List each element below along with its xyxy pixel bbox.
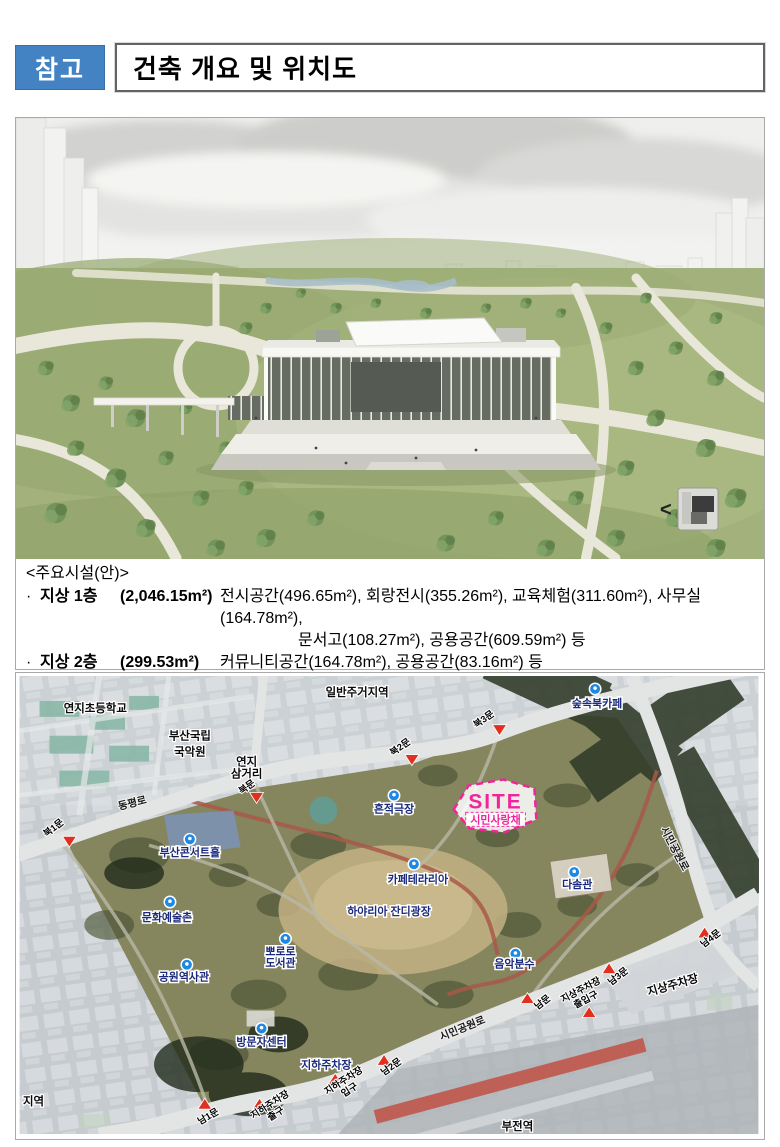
report-page: 참고 건축 개요 및 위치도: [0, 0, 780, 1147]
facility-name: 지상 1층: [40, 586, 118, 608]
facility-area: (299.53m²): [120, 652, 218, 674]
site-polygon: SITE 시민사랑채: [454, 780, 537, 833]
label-school: 연지초등학교: [64, 701, 128, 715]
facility-row-floor1: · 지상 1층 (2,046.15m²) 전시공간(496.65m²), 회랑전…: [26, 586, 758, 652]
label-music-fountain: 음악분수: [494, 958, 534, 971]
bullet: ·: [26, 586, 38, 608]
map-panel: SITE 시민사랑채: [15, 672, 765, 1140]
facilities-heading: <주요시설(안)>: [26, 563, 758, 585]
label-dasom-hall: 다솜관: [562, 877, 592, 891]
label-cafeteria: 카페테라리아: [388, 872, 448, 886]
overview-panel: < <주요시설(안)> · 지상 1층 (2,046.15m²) 전시공간(49…: [15, 117, 765, 670]
label-yeonji-line2: 삼거리: [231, 767, 263, 781]
label-gugak-line1: 부산국립: [169, 729, 211, 743]
label-district-partial: 지역: [23, 1094, 44, 1108]
label-book-cafe: 숲속북카페: [572, 696, 622, 710]
facility-row-floor2: · 지상 2층 (299.53m²) 커뮤니티공간(164.78m²), 공용공…: [26, 652, 758, 674]
facility-desc: 커뮤니티공간(164.78m²), 공용공간(83.16m²) 등: [220, 652, 758, 674]
label-pororo-line1: 뽀로로: [265, 945, 295, 958]
compass-arrow: <: [660, 499, 672, 521]
facility-desc: 전시공간(496.65m²), 회랑전시(355.26m²), 교육체험(311…: [220, 586, 758, 630]
label-trace-theater: 흔적극장: [374, 801, 414, 815]
facility-name: 지상 2층: [40, 652, 118, 674]
label-art-village: 문화예술촌: [142, 910, 192, 924]
architectural-rendering: <: [16, 118, 764, 559]
label-pororo-line2: 도서관: [265, 956, 295, 970]
header: 참고 건축 개요 및 위치도: [15, 43, 765, 92]
facility-desc-cont: 문서고(108.27m²), 공용공간(609.59m²) 등: [220, 630, 758, 652]
site-label: SITE: [468, 790, 522, 813]
label-lawn-plaza: 하야리아 잔디광장: [347, 904, 431, 918]
reference-badge: 참고: [15, 45, 105, 90]
title-box: 건축 개요 및 위치도: [115, 43, 765, 92]
label-bujeon-station: 부전역: [502, 1119, 534, 1133]
label-yeonji-line1: 연지: [236, 755, 257, 769]
label-gugak-line2: 국악원: [174, 745, 206, 759]
label-concert-hall: 부산콘서트홀: [160, 845, 220, 859]
facility-area: (2,046.15m²): [120, 586, 218, 608]
bullet: ·: [26, 652, 38, 674]
label-visitor-center: 방문자센터: [236, 1034, 286, 1048]
page-title: 건축 개요 및 위치도: [133, 49, 357, 86]
label-residential: 일반주거지역: [326, 685, 389, 699]
label-underground-parking: 지하주차장: [301, 1057, 351, 1071]
label-history-hall: 공원역사관: [159, 970, 209, 984]
location-map: SITE 시민사랑채: [19, 676, 759, 1134]
site-name-label: 시민사랑채: [470, 812, 520, 826]
